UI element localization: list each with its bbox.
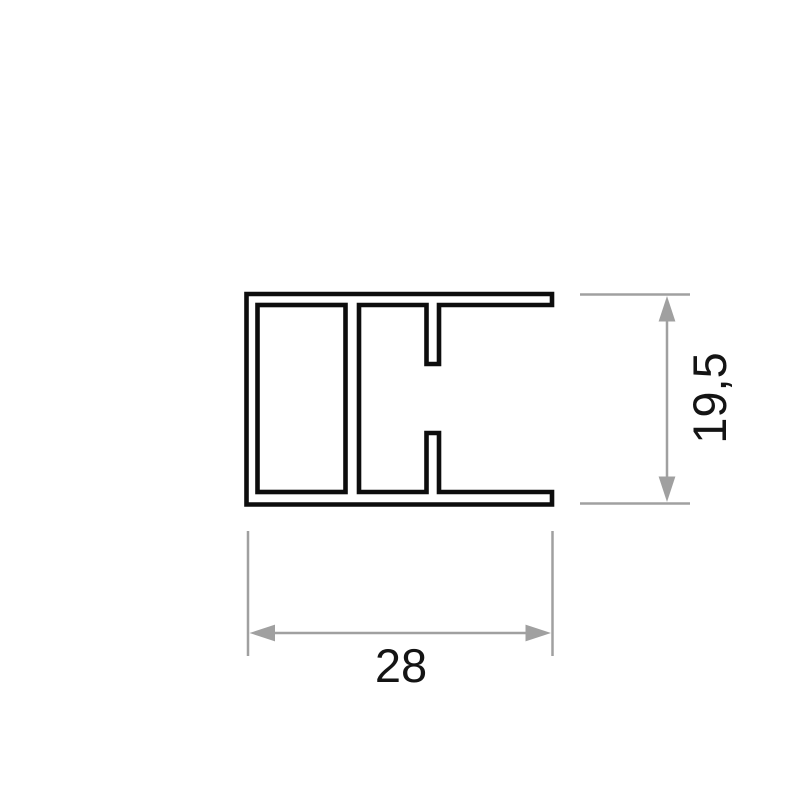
arrow-up-icon (659, 296, 676, 322)
height-dimension-label: 19,5 (683, 352, 736, 443)
arrow-left-icon (250, 625, 276, 642)
height-dimension: 19,5 (580, 295, 736, 504)
profile-inner-cavity (258, 305, 346, 492)
profile-technical-drawing: 19,5 28 (0, 0, 800, 800)
drawing-canvas: 19,5 28 (0, 0, 800, 800)
arrow-right-icon (526, 625, 552, 642)
width-dimension: 28 (248, 531, 553, 692)
profile-outer-contour (247, 294, 553, 505)
profile-cross-section (247, 294, 553, 505)
arrow-down-icon (659, 477, 676, 503)
width-dimension-label: 28 (375, 639, 427, 692)
